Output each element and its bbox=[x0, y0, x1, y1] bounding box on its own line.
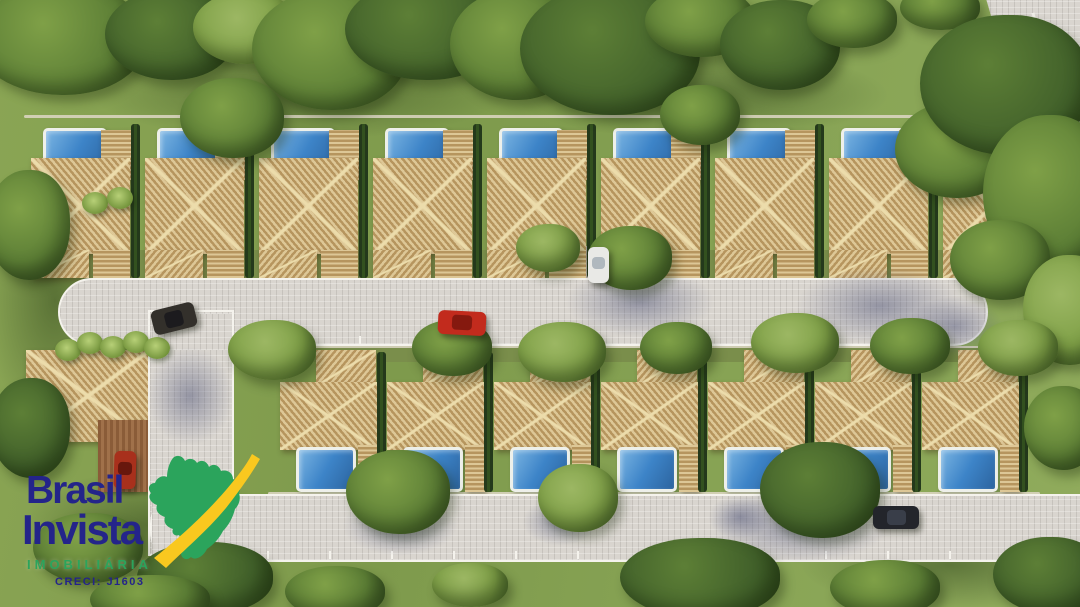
house-roof bbox=[494, 382, 591, 450]
parking-mark bbox=[577, 551, 579, 559]
house-roof-extension bbox=[316, 350, 376, 386]
brazil-map-shape bbox=[149, 456, 240, 559]
patio-pergola-roof bbox=[93, 250, 130, 278]
tree bbox=[432, 563, 508, 607]
tree bbox=[538, 464, 618, 532]
car-dark-south-glass bbox=[887, 510, 906, 525]
tree bbox=[751, 313, 839, 373]
lot-hedge bbox=[698, 352, 707, 492]
parking-mark bbox=[329, 551, 331, 559]
pool-pergola-roof bbox=[679, 445, 699, 492]
lot-hedge bbox=[473, 124, 482, 278]
swimming-pool bbox=[938, 447, 998, 492]
lot-hedge bbox=[359, 124, 368, 278]
car-white-driveway-glass bbox=[592, 257, 605, 269]
house-roof bbox=[259, 158, 358, 254]
house-roof bbox=[373, 158, 472, 254]
tree bbox=[640, 322, 712, 374]
parking-mark bbox=[949, 551, 951, 559]
palm-tree bbox=[82, 192, 108, 214]
house-roof bbox=[145, 158, 244, 254]
tree bbox=[228, 320, 316, 380]
lot-hedge bbox=[701, 124, 710, 278]
pool-pergola-roof bbox=[893, 445, 913, 492]
house-roof bbox=[715, 158, 814, 254]
parking-mark bbox=[359, 336, 361, 344]
house-roof bbox=[387, 382, 484, 450]
pool-pergola-roof bbox=[465, 445, 485, 492]
house-roof bbox=[815, 382, 912, 450]
tree bbox=[870, 318, 950, 374]
car-red-street-glass bbox=[452, 315, 473, 331]
tree bbox=[660, 85, 740, 145]
palm-tree bbox=[77, 332, 103, 354]
pool-pergola-roof bbox=[1000, 445, 1020, 492]
patio-pergola-roof bbox=[207, 250, 244, 278]
house-roof-extension bbox=[259, 250, 317, 278]
brand-name-line2: Invista bbox=[22, 512, 141, 548]
house-roof-extension bbox=[373, 250, 431, 278]
house-roof-extension bbox=[145, 250, 203, 278]
house-roof-extension bbox=[715, 250, 773, 278]
house-roof bbox=[922, 382, 1019, 450]
parking-mark bbox=[515, 551, 517, 559]
tree bbox=[760, 442, 880, 538]
lot-hedge bbox=[484, 352, 493, 492]
palm-tree bbox=[107, 187, 133, 209]
tree bbox=[620, 538, 780, 607]
tree bbox=[978, 320, 1058, 376]
perimeter-wall bbox=[24, 115, 1048, 118]
house-roof bbox=[708, 382, 805, 450]
tree bbox=[516, 224, 580, 272]
tree bbox=[346, 450, 450, 534]
brand-subtitle: IMOBILIÁRIA bbox=[27, 557, 152, 572]
brand-license: CRECI: J1603 bbox=[55, 576, 145, 588]
patio-pergola-roof bbox=[435, 250, 472, 278]
house-roof bbox=[601, 382, 698, 450]
aerial-render: Brasil Invista IMOBILIÁRIA CRECI: J1603 bbox=[0, 0, 1080, 607]
brand-watermark: Brasil Invista IMOBILIÁRIA CRECI: J1603 bbox=[0, 428, 310, 607]
palm-tree bbox=[144, 337, 170, 359]
tree bbox=[180, 78, 284, 158]
lot-hedge bbox=[815, 124, 824, 278]
tree bbox=[830, 560, 940, 607]
patio-pergola-roof bbox=[321, 250, 358, 278]
palm-tree bbox=[100, 336, 126, 358]
tree bbox=[518, 322, 606, 382]
brand-name-line1: Brasil bbox=[26, 474, 122, 507]
swimming-pool bbox=[617, 447, 677, 492]
